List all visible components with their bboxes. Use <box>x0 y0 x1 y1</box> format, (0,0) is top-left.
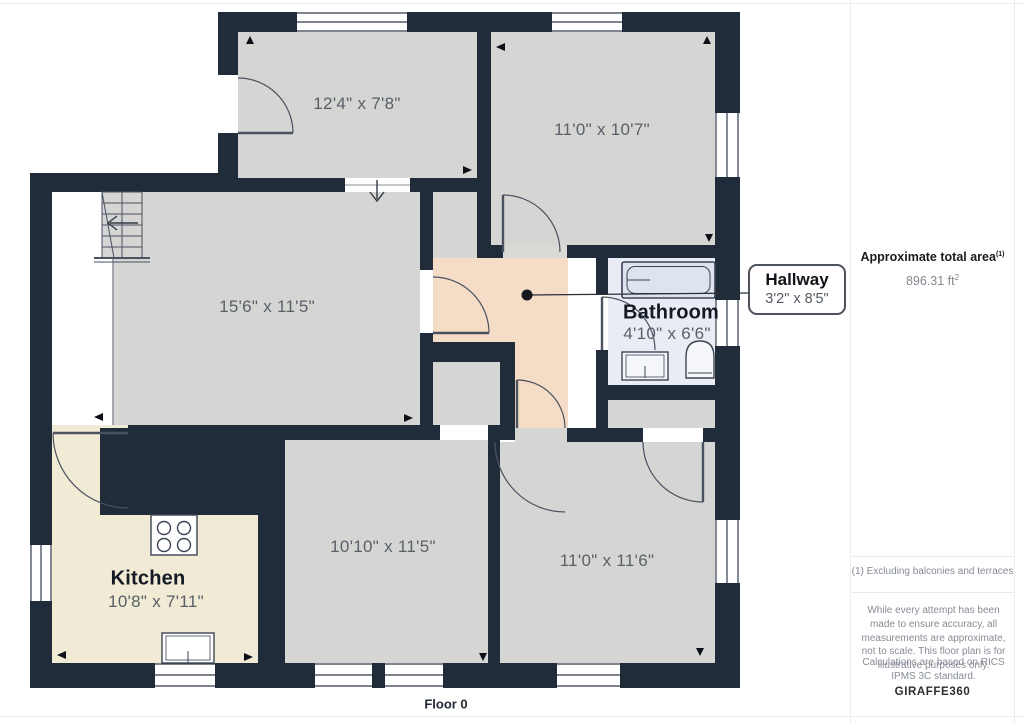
hallway-callout: Hallway 3'2" x 8'5" <box>748 264 846 315</box>
sidebar-divider <box>852 592 1015 593</box>
room-dims-kitchen: 10'8" x 7'11" <box>108 592 204 612</box>
window <box>385 663 443 688</box>
standard-text: Calculations are based on RICS IPMS 3C s… <box>859 656 1008 684</box>
vestibule-floor <box>515 428 567 442</box>
room-dims-bottom-right: 11'0" x 11'6" <box>560 551 655 571</box>
stove <box>151 515 197 555</box>
room-dims-living: 15'6" x 11'5" <box>219 297 315 317</box>
info-sidebar: Approximate total area(1) 896.31 ft2 (1)… <box>850 0 1015 723</box>
hallway-floor-column <box>515 342 568 428</box>
kitchen-floor-upper <box>50 440 100 515</box>
giraffe360-logo: GIRAFFE360 <box>851 686 1014 698</box>
bathroom-sink <box>622 352 668 380</box>
hallway-floor-bar <box>433 258 568 342</box>
window <box>557 663 620 688</box>
camera-point <box>522 290 533 301</box>
window <box>30 545 52 601</box>
hallway-callout-dims: 3'2" x 8'5" <box>750 291 844 307</box>
closet-cell-floor <box>433 192 477 258</box>
sidebar-divider <box>852 556 1015 557</box>
room-dims-bottom-middle: 10'10" x 11'5" <box>330 537 436 557</box>
floorplan-page: 12'4" x 7'8" 11'0" x 10'7" 15'6" x 11'5"… <box>0 0 1024 723</box>
window <box>715 520 740 583</box>
window <box>155 663 215 688</box>
door-threshold <box>503 245 567 258</box>
window <box>315 663 372 688</box>
room-name-kitchen: Kitchen <box>111 568 186 591</box>
total-area-title: Approximate total area(1) <box>851 250 1014 264</box>
window <box>297 12 407 32</box>
kitchen-sink <box>162 633 214 663</box>
toilet <box>686 341 714 378</box>
hallway-pocket-floor <box>433 362 500 425</box>
footnote: (1) Excluding balconies and terraces <box>851 566 1014 577</box>
room-dims-top-left: 12'4" x 7'8" <box>313 94 400 114</box>
bathtub <box>622 262 715 298</box>
window <box>552 12 622 32</box>
room-name-bathroom: Bathroom <box>623 302 719 325</box>
nook-floor <box>608 400 715 428</box>
total-area-value: 896.31 ft2 <box>851 273 1014 288</box>
room-dims-bathroom: 4'10" x 6'6" <box>623 324 710 344</box>
room-dims-top-right: 11'0" x 10'7" <box>554 120 650 140</box>
window <box>715 113 740 177</box>
floor-label: Floor 0 <box>424 697 467 712</box>
hallway-callout-name: Hallway <box>750 270 844 290</box>
